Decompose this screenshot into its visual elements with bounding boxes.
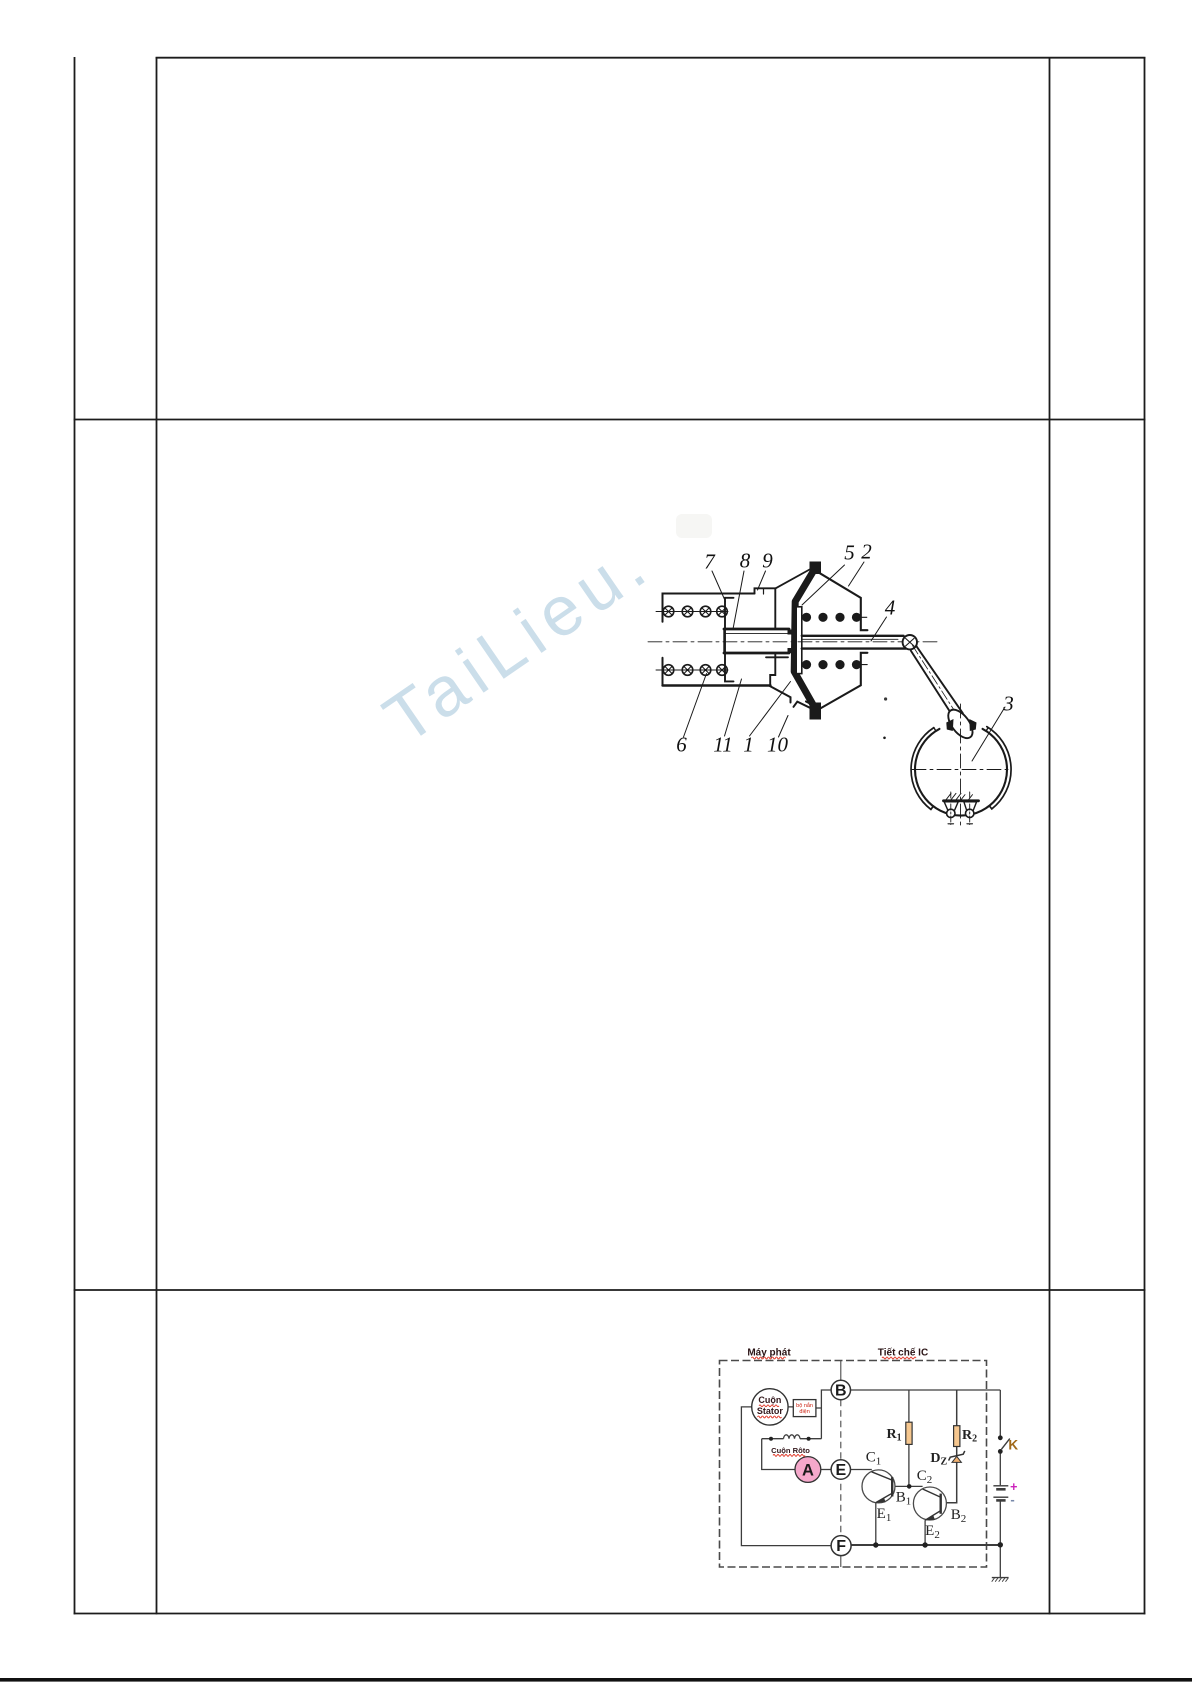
svg-text:2: 2 bbox=[861, 540, 872, 564]
svg-text:E: E bbox=[835, 1462, 846, 1479]
svg-text:B1: B1 bbox=[896, 1490, 912, 1508]
svg-text:K: K bbox=[1008, 1437, 1018, 1452]
svg-text:C2: C2 bbox=[917, 1468, 933, 1486]
svg-text:6: 6 bbox=[676, 733, 687, 757]
svg-text:Cuộn: Cuộn bbox=[758, 1395, 781, 1405]
svg-text:F: F bbox=[836, 1538, 846, 1555]
svg-text:Cuộn Rôto: Cuộn Rôto bbox=[771, 1446, 810, 1455]
svg-text:bộ nắn: bộ nắn bbox=[796, 1402, 813, 1409]
svg-text:A: A bbox=[802, 1461, 814, 1479]
svg-text:4: 4 bbox=[885, 596, 896, 620]
svg-text:8: 8 bbox=[740, 549, 751, 573]
svg-text:DZ: DZ bbox=[930, 1451, 947, 1468]
svg-text:C1: C1 bbox=[866, 1450, 882, 1468]
svg-text:R1: R1 bbox=[886, 1427, 901, 1444]
svg-text:B2: B2 bbox=[951, 1507, 967, 1525]
svg-text:TaiLieu.: TaiLieu. bbox=[370, 526, 658, 758]
svg-text:R2: R2 bbox=[962, 1428, 977, 1445]
svg-text:9: 9 bbox=[762, 549, 773, 573]
svg-text:E2: E2 bbox=[925, 1523, 940, 1541]
svg-text:11: 11 bbox=[713, 733, 732, 757]
svg-text:điện: điện bbox=[799, 1409, 809, 1415]
svg-text:Stator: Stator bbox=[757, 1406, 784, 1416]
svg-text:10: 10 bbox=[767, 733, 789, 757]
svg-text:7: 7 bbox=[704, 550, 716, 574]
svg-text:5: 5 bbox=[844, 541, 855, 565]
svg-text:-: - bbox=[1010, 1492, 1014, 1507]
svg-text:3: 3 bbox=[1002, 692, 1014, 716]
svg-text:E1: E1 bbox=[877, 1506, 892, 1524]
svg-text:1: 1 bbox=[743, 733, 754, 757]
svg-text:B: B bbox=[835, 1383, 847, 1400]
